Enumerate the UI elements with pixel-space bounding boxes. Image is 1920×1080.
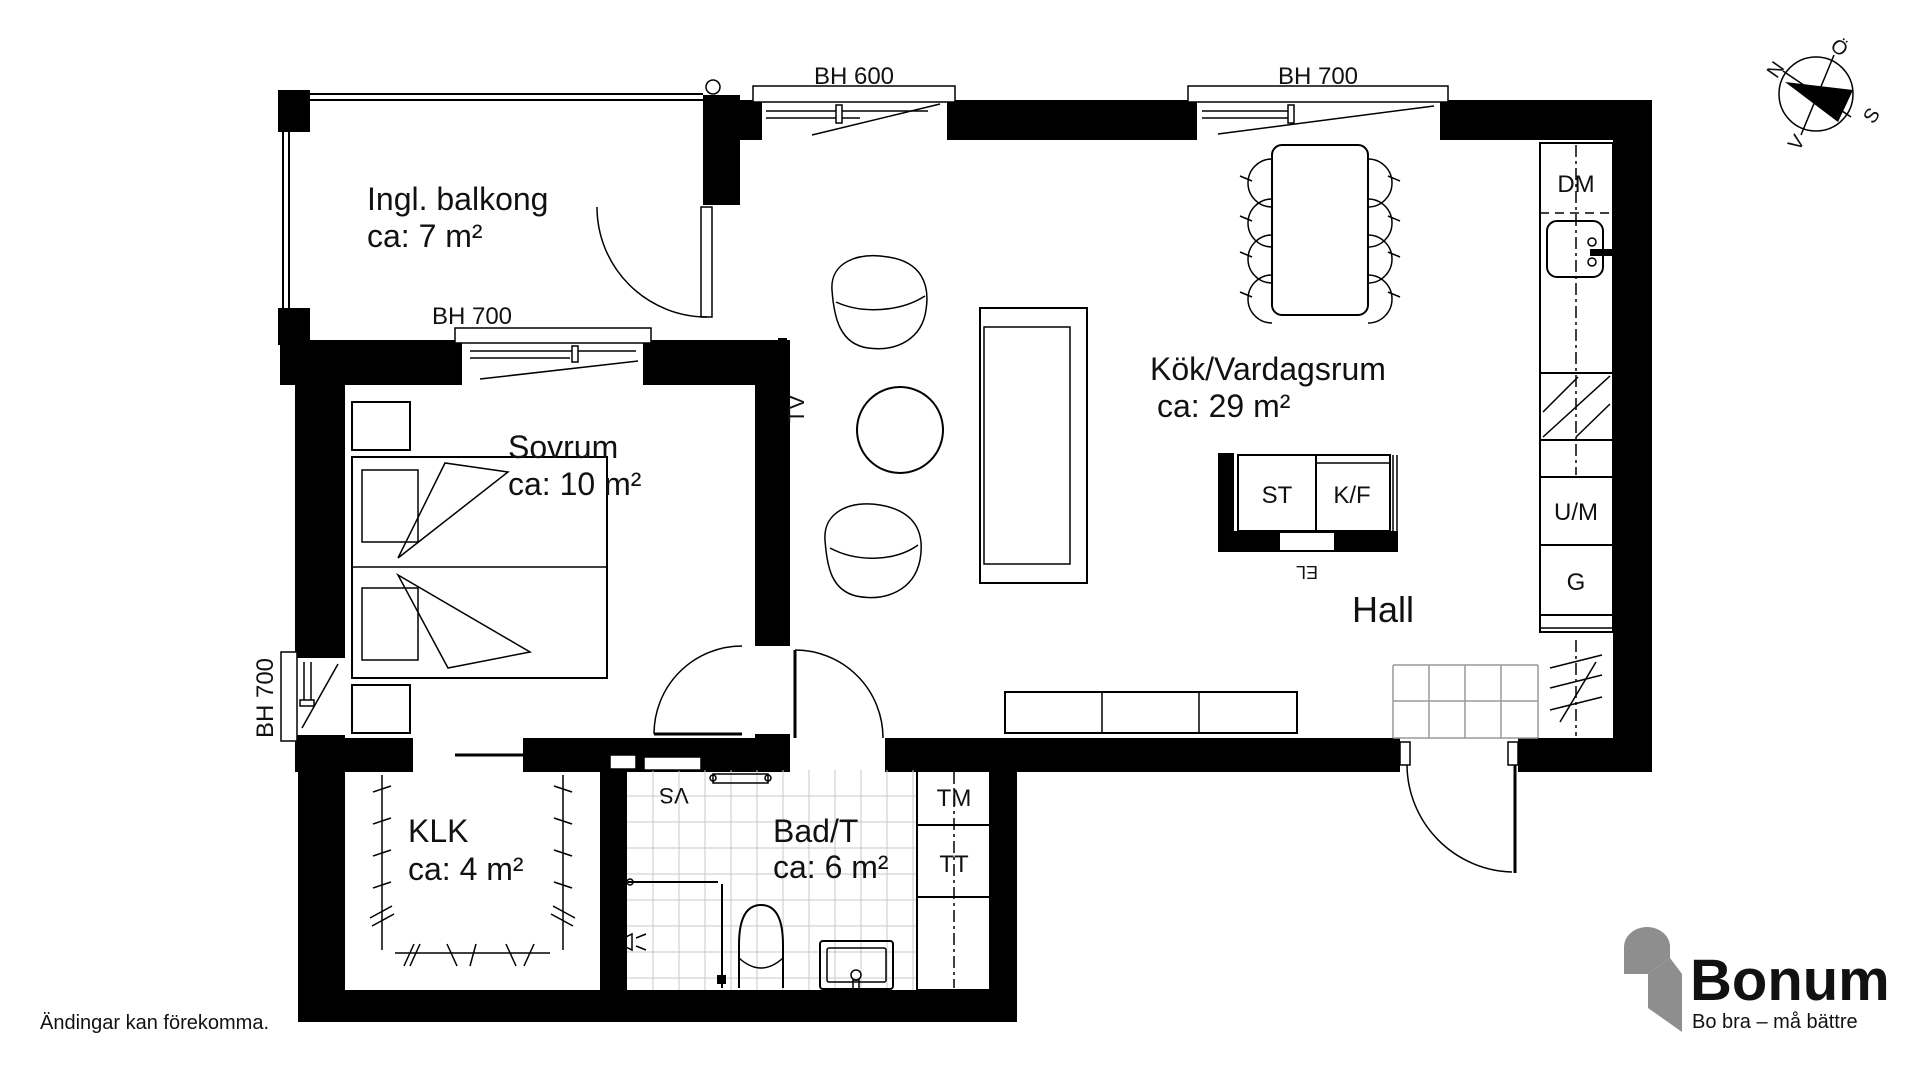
klk-rail-right [551, 775, 575, 950]
klk-rail-bottom [395, 944, 550, 966]
coat-rail [1550, 640, 1602, 736]
bonum-brand: Bonum [1690, 948, 1890, 1013]
washing-machine-label: TM [937, 785, 972, 812]
compass-west: V [1784, 131, 1810, 155]
kitchen-sink [1547, 221, 1612, 277]
bedroom-name: Sovrum [508, 429, 618, 465]
window-bh700-top: BH 700 [1188, 63, 1448, 134]
window-bh700-balcony: BH 700 [432, 303, 651, 385]
sideboard [1005, 692, 1297, 733]
armchair [825, 504, 921, 598]
vs-label: VS [659, 783, 688, 808]
entry-door [1400, 742, 1518, 873]
window-bh700-balcony-label: BH 700 [432, 303, 512, 330]
micro-oven-label: U/M [1554, 499, 1598, 526]
dining-chairs-right [1368, 159, 1400, 323]
sink [820, 941, 893, 989]
compass-needle [1785, 82, 1853, 122]
compass-east: Ö [1826, 35, 1852, 62]
bedroom-area: ca: 10 m² [508, 466, 642, 502]
toilet [739, 905, 783, 988]
el-label: EL [1296, 562, 1318, 582]
floorplan-canvas: Ingl. balkong ca: 7 m² BH 600 BH 700 [0, 0, 1920, 1080]
compass-north: N [1763, 58, 1789, 82]
tv-label: TV [784, 395, 809, 423]
balcony-door [597, 207, 712, 317]
laundry-column: TM TT [917, 770, 990, 990]
compass: N Ö S V [1763, 35, 1885, 155]
fridge-freezer-label: K/F [1333, 482, 1370, 509]
coffee-table [857, 387, 943, 473]
shower [616, 879, 726, 988]
window-bh700-bedroom: BH 700 [252, 652, 345, 741]
kitchen-cabinets: DM U/M G [1540, 143, 1613, 736]
bathroom-area: ca: 6 m² [773, 849, 889, 885]
compass-south: S [1859, 104, 1885, 128]
balcony: Ingl. balkong ca: 7 m² [283, 80, 720, 317]
bedroom-door [654, 646, 742, 734]
bonum-logo: Bonum Bo bra – må bättre [1624, 927, 1890, 1033]
nightstand [352, 685, 410, 733]
hall-name: Hall [1352, 589, 1414, 630]
hall-closet-unit: ST K/F EL [1238, 455, 1397, 582]
window-bh600-label: BH 600 [814, 63, 894, 90]
bathroom-door [795, 650, 883, 738]
hall: ST K/F EL Hall [1238, 455, 1538, 873]
disclaimer: Ändingar kan förekomma. [40, 1012, 269, 1034]
doormat [1393, 665, 1538, 738]
wardrobe-label: G [1567, 569, 1586, 596]
el-cabinet [1280, 533, 1334, 550]
cleaning-cabinet-label: ST [1262, 482, 1293, 509]
bathroom: VS [610, 650, 990, 990]
armchair [832, 256, 927, 349]
floorplan-svg: Ingl. balkong ca: 7 m² BH 600 BH 700 [0, 0, 1920, 1080]
bathroom-name: Bad/T [773, 813, 858, 849]
dining-table [1272, 145, 1368, 315]
sofa [980, 308, 1087, 583]
klk-rail-left [370, 775, 394, 950]
vent-symbol [706, 80, 720, 94]
dining-set [1240, 145, 1400, 323]
bonum-tagline: Bo bra – må bättre [1692, 1011, 1858, 1033]
balcony-name: Ingl. balkong [367, 181, 548, 217]
window-bh700-bedroom-label: BH 700 [252, 658, 279, 738]
living-room: TV Kök/Vardagsrum ca: 29 m² [778, 256, 1386, 733]
bedroom: Sovrum ca: 10 m² [352, 402, 742, 734]
dining-chairs-left [1240, 159, 1272, 323]
towel-rail [710, 774, 771, 783]
kitchen-living-name: Kök/Vardagsrum [1150, 351, 1386, 387]
klk-area: ca: 4 m² [408, 851, 524, 887]
dryer-label: TT [939, 851, 969, 878]
kitchen-living-area: ca: 29 m² [1157, 388, 1291, 424]
balcony-area: ca: 7 m² [367, 218, 483, 254]
tv: TV [778, 338, 809, 480]
dishwasher-label: DM [1557, 171, 1594, 198]
window-bh600-top: BH 600 [753, 63, 955, 135]
klk-name: KLK [408, 813, 468, 849]
window-bh700-top-label: BH 700 [1278, 63, 1358, 90]
nightstand [352, 402, 410, 450]
closet-klk: KLK ca: 4 m² [370, 755, 575, 966]
